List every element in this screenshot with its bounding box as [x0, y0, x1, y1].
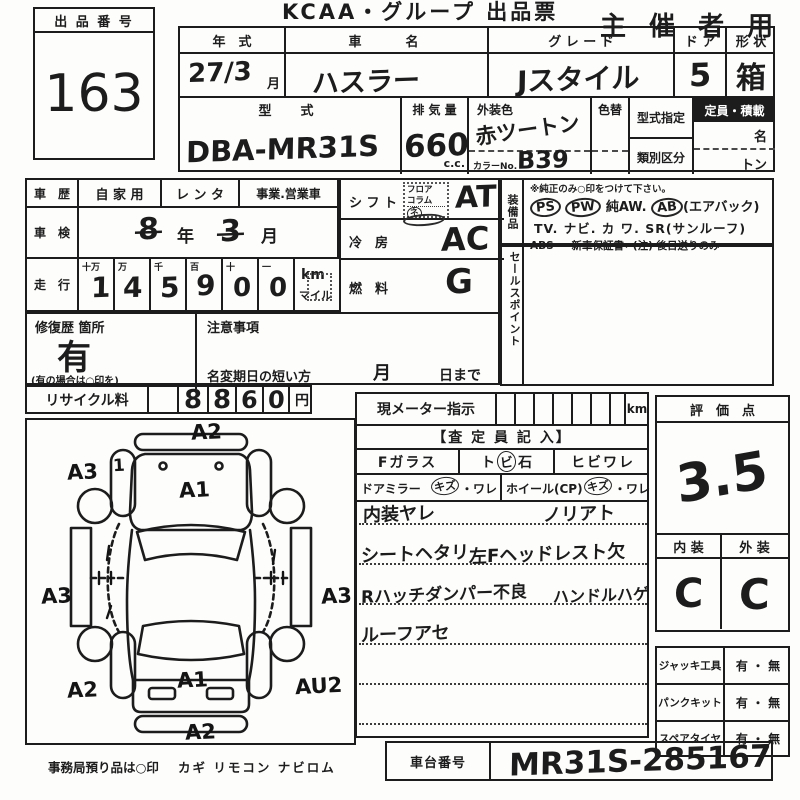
type-designation-label: 型式指定 — [630, 98, 692, 139]
assessor-panel: 現メーター指示 km 【査 定 員 記 入】 Fガラス ト ビ 石 ヒビワレ ド… — [355, 392, 649, 738]
meter-cell-2 — [516, 394, 535, 424]
evaluation-label: 評 価 点 — [657, 397, 788, 423]
lot-number-box: 出 品 番 号 163 — [33, 7, 155, 160]
interior-label: 内 装 — [657, 535, 722, 557]
grade-cell: Jスタイル — [489, 54, 675, 96]
mileage-label: 走 行 — [27, 259, 79, 312]
rename-label: 名変期日の短い方 — [207, 366, 311, 385]
glass-options: ト ビ 石 — [460, 450, 555, 473]
sales-point-box: セールスポイント — [500, 245, 774, 386]
wheel-cell: ホイール(CP) キズ ・ワレ — [502, 475, 651, 500]
glass-opt-ishi: 石 — [518, 452, 532, 472]
shaken-cell: 8 年 3 月 — [79, 208, 339, 259]
capacity-persons: 名 — [694, 122, 775, 150]
glass-crack: ヒビワレ — [555, 450, 651, 473]
note-line-6 — [359, 723, 647, 725]
displacement-header: 排 気 量 — [402, 98, 467, 120]
digit-col-5: 十 0 — [223, 259, 259, 312]
assessor-header: 【査 定 員 記 入】 — [357, 426, 647, 450]
recycle-digit-1-value: 8 — [184, 384, 203, 415]
digit-header-6: 一 — [262, 260, 271, 273]
class-category-label: 類別区分 — [630, 139, 692, 176]
mirror-cell: ドアミラー キズ ・ワレ — [357, 475, 502, 500]
wheel-scratch: キズ — [583, 476, 613, 497]
grade-value: Jスタイル — [517, 56, 640, 100]
note-steering-wear: ハンドルハゲ — [553, 580, 649, 607]
equipment-ab-suffix: (エアバック) — [683, 200, 759, 215]
damage-hood: A1 — [178, 477, 210, 503]
repair-row: 修復歴 箇所 有 (有の場合は○印を) 注意事項 名変期日の短い方 月 日まで — [27, 312, 502, 387]
damage-left: A3 — [40, 583, 72, 609]
damage-bottom: A2 — [184, 719, 216, 745]
recycle-label: リサイクル料 — [27, 387, 149, 412]
jack-label: ジャッキ工具 — [657, 648, 725, 683]
shaken-year-unit: 年 — [177, 222, 194, 247]
meter-label: 現メーター指示 — [357, 394, 497, 424]
puncture-kit-label: パンクキット — [657, 685, 725, 720]
exterior-grade: C — [739, 569, 771, 619]
digit-5: 0 — [233, 273, 252, 304]
sheet-title: KCAA・グループ 出品票 — [282, 0, 558, 26]
notes-area: 内装ヤレ ノリアト シートヘタリ 左Fヘッドレスト欠 Rハッチダンパー不良 ハン… — [357, 502, 647, 740]
shaken-label: 車 検 — [27, 208, 79, 259]
mirror-label: ドアミラー — [361, 480, 421, 497]
unit-checkbox — [307, 273, 332, 301]
damage-front-left: A3 — [66, 459, 98, 485]
meter-cell-5 — [573, 394, 592, 424]
evaluation-score-cell: 3.5 — [657, 423, 788, 533]
sales-point-label: セールスポイント — [502, 247, 524, 384]
repaint-cell: 色替 — [592, 96, 630, 174]
digit-col-4: 百 9 — [187, 259, 223, 312]
grade-header: グ レ ー ド — [489, 28, 675, 54]
mirror-scratch: キズ — [430, 476, 460, 497]
exterior-label: 外 装 — [722, 535, 787, 557]
meter-cell-3 — [535, 394, 554, 424]
fuel-row: 燃 料 G — [341, 260, 504, 312]
mirror-wheel-row: ドアミラー キズ ・ワレ ホイール(CP) キズ ・ワレ — [357, 475, 647, 502]
interior-grade-cell: C — [657, 559, 722, 629]
lot-number-value: 163 — [35, 39, 153, 149]
digit-1: 1 — [91, 271, 111, 305]
exterior-grade-cell: C — [722, 559, 787, 629]
spec-table: 年 式 車 名 グ レ ー ド ド ア 形 状 27/3 月 ハスラー Jスタイ… — [178, 26, 775, 172]
wheel-crack: ・ワレ — [614, 480, 650, 497]
year-cell: 27/3 月 — [180, 54, 286, 96]
capacity-tons: トン — [694, 150, 775, 176]
shaken-year: 8 — [135, 212, 162, 248]
career-business: 事業.営業車 — [240, 180, 339, 208]
recycle-digit-1: 8 — [179, 387, 209, 412]
equipment-aw: 純AW. — [606, 200, 647, 215]
mileage-cell: 十万 1 万 4 千 5 百 9 十 0 一 0 km — [79, 259, 339, 312]
recycle-digit-3-value: 6 — [241, 385, 258, 414]
digit-6: 0 — [269, 273, 288, 304]
meter-unit: km — [626, 394, 648, 424]
auction-sheet: 出 品 番 号 163 KCAA・グループ 出品票 主 催 者 用 年 式 車 … — [0, 0, 800, 800]
model-value: DBA-MR31S — [186, 129, 380, 170]
recycle-digit-3: 6 — [237, 387, 264, 412]
meter-cell-4 — [554, 394, 573, 424]
glass-label: Fガラス — [357, 450, 460, 473]
recycle-digit-4-value: 0 — [267, 385, 284, 414]
footer-items: カギ リモコン ナビロム — [178, 757, 336, 776]
note-interior-wear: 内装ヤレ — [363, 499, 435, 528]
caution-cell: 注意事項 名変期日の短い方 月 日まで — [197, 314, 502, 389]
ac-value: AC — [441, 219, 490, 259]
shaken-month: 3 — [217, 214, 244, 250]
equipment-box: 装備品 ※純正のみ○印をつけて下さい。 PS PW 純AW. AB(エアバック)… — [500, 178, 774, 245]
damage-rear-left: A2 — [66, 677, 98, 703]
mirror-crack: ・ワレ — [461, 480, 497, 497]
footer-note: 事務局預り品は○印 — [48, 757, 159, 776]
jack-value: 有 ・ 無 — [725, 648, 791, 683]
name-value: ハスラー — [312, 58, 421, 101]
shape-header: 形 状 — [727, 28, 775, 54]
shift-label: シ フ ト — [349, 192, 397, 211]
type-designation-cell: 型式指定 類別区分 — [630, 96, 694, 174]
interior-grade: C — [673, 570, 703, 617]
displacement-cell: 排 気 量 660 c.c. — [402, 96, 469, 174]
damage-rear: A1 — [176, 667, 208, 693]
capacity-cell: 定員・積載 名 トン — [694, 96, 775, 174]
caution-label: 注意事項 — [207, 317, 259, 336]
note-glue-marks: ノリアト — [543, 499, 615, 528]
note-seat-sag: シートヘタリ — [361, 538, 469, 568]
wheel-label: ホイール(CP) — [506, 480, 583, 497]
lot-number-label: 出 品 番 号 — [35, 9, 153, 33]
name-cell: ハスラー — [286, 54, 489, 96]
digit-3: 5 — [160, 271, 180, 305]
note-headrest-missing: 左Fヘッドレスト欠 — [469, 537, 626, 568]
year-value: 27/3 — [188, 57, 252, 89]
meter-row: 現メーター指示 km — [357, 394, 647, 426]
ac-label: 冷 房 — [349, 232, 388, 251]
glass-opt-to: ト — [481, 452, 495, 472]
career-private: 自 家 用 — [79, 180, 162, 208]
recycle-blank — [149, 387, 179, 412]
recycle-digit-4: 0 — [264, 387, 290, 412]
equipment-line2: TV. ナビ. カ ワ. SR(サンルーフ) — [526, 217, 774, 237]
shift-opt-floor: フロア — [407, 185, 445, 196]
puncture-kit-value: 有 ・ 無 — [725, 685, 791, 720]
glass-opt-bi: ビ — [496, 450, 517, 473]
recycle-row: リサイクル料 8 8 6 0 円 — [25, 385, 312, 414]
rename-day: 日まで — [439, 365, 481, 385]
color-no-value: B39 — [517, 145, 569, 175]
repaint-divider — [592, 150, 628, 152]
career-rental: レ ン タ — [162, 180, 240, 208]
digit-col-3: 千 5 — [151, 259, 187, 312]
damage-rear-right: AU2 — [294, 673, 342, 699]
model-cell: 型 式 DBA-MR31S — [180, 96, 402, 174]
chassis-label: 車台番号 — [387, 743, 491, 779]
equipment-pw: PW — [565, 196, 602, 218]
digit-col-1: 十万 1 — [79, 259, 115, 312]
meter-cell-1 — [497, 394, 516, 424]
shape-cell: 箱 — [727, 54, 775, 96]
note-roof-fade: ルーフアセ — [361, 618, 450, 647]
equipment-ps: PS — [529, 197, 561, 219]
evaluation-score: 3.5 — [674, 440, 771, 516]
shift-opt-column: コラム — [407, 196, 445, 208]
meter-cell-7 — [611, 394, 626, 424]
shift-options: フロア コラム ネ — [403, 182, 449, 218]
fuel-value: G — [445, 261, 474, 302]
year-unit: 月 — [267, 73, 280, 92]
tools-row-jack: ジャッキ工具 有 ・ 無 — [657, 648, 788, 685]
tools-row-puncture: パンクキット 有 ・ 無 — [657, 685, 788, 722]
recycle-digit-2-value: 8 — [213, 384, 232, 415]
history-table: 車 歴 自 家 用 レ ン タ 事業.営業車 車 検 8 年 3 月 走 行 十… — [25, 178, 500, 385]
shaken-month-unit: 月 — [261, 222, 278, 247]
fuel-label: 燃 料 — [349, 278, 388, 297]
chassis-value: MR31S-285167 — [509, 738, 772, 783]
color-cell: 外装色 赤ツートン カラーNo. B39 — [469, 96, 592, 174]
digit-col-6: 一 0 — [259, 259, 295, 312]
damage-front-left-tick: 1 — [112, 456, 125, 477]
chassis-box: 車台番号 MR31S-285167 — [385, 741, 773, 781]
equipment-ab: AB — [650, 197, 684, 219]
damage-right: A3 — [320, 583, 352, 609]
door-header: ド ア — [675, 28, 727, 54]
door-cell: 5 — [675, 54, 727, 96]
shape-value: 箱 — [736, 52, 767, 97]
digit-2: 4 — [123, 271, 143, 305]
glass-row: Fガラス ト ビ 石 ヒビワレ — [357, 450, 647, 475]
equipment-line1: PS PW 純AW. AB(エアバック) — [526, 195, 774, 217]
evaluation-box: 評 価 点 3.5 内 装 外 装 C C — [655, 395, 790, 632]
grade-value-row: C C — [657, 559, 788, 629]
shift-value: AT — [455, 179, 497, 215]
grade-header-row: 内 装 外 装 — [657, 533, 788, 559]
year-header: 年 式 — [180, 28, 286, 54]
color-no-label: カラーNo. — [473, 159, 517, 172]
car-diagram-box: A2 A3 1 A1 A3 A3 A2 AU2 A1 A2 — [25, 418, 356, 745]
recycle-unit: 円 — [290, 387, 314, 412]
name-header: 車 名 — [286, 28, 489, 54]
equipment-note: ※純正のみ○印をつけて下さい。 — [526, 180, 774, 195]
career-label: 車 歴 — [27, 180, 79, 208]
door-value: 5 — [689, 56, 712, 95]
equipment-label: 装備品 — [502, 180, 524, 243]
repair-cell: 修復歴 箇所 有 (有の場合は○印を) — [27, 314, 197, 389]
equipment-content: ※純正のみ○印をつけて下さい。 PS PW 純AW. AB(エアバック) TV.… — [526, 180, 774, 243]
digit-col-2: 万 4 — [115, 259, 151, 312]
digit-header-5: 十 — [226, 260, 235, 273]
note-line-5 — [359, 683, 647, 685]
model-header: 型 式 — [180, 98, 400, 120]
displacement-unit: c.c. — [444, 157, 465, 170]
rename-month: 月 — [373, 359, 391, 385]
recycle-digit-2: 8 — [209, 387, 237, 412]
repaint-header: 色替 — [592, 98, 628, 120]
chassis-cell: MR31S-285167 — [491, 743, 775, 779]
meter-cell-6 — [592, 394, 611, 424]
digit-4: 9 — [196, 269, 216, 303]
drivetrain-column: シ フ ト フロア コラム ネ AT 冷 房 AC 燃 料 G — [339, 180, 502, 312]
damage-front: A2 — [190, 419, 222, 445]
capacity-header: 定員・積載 — [694, 98, 775, 122]
